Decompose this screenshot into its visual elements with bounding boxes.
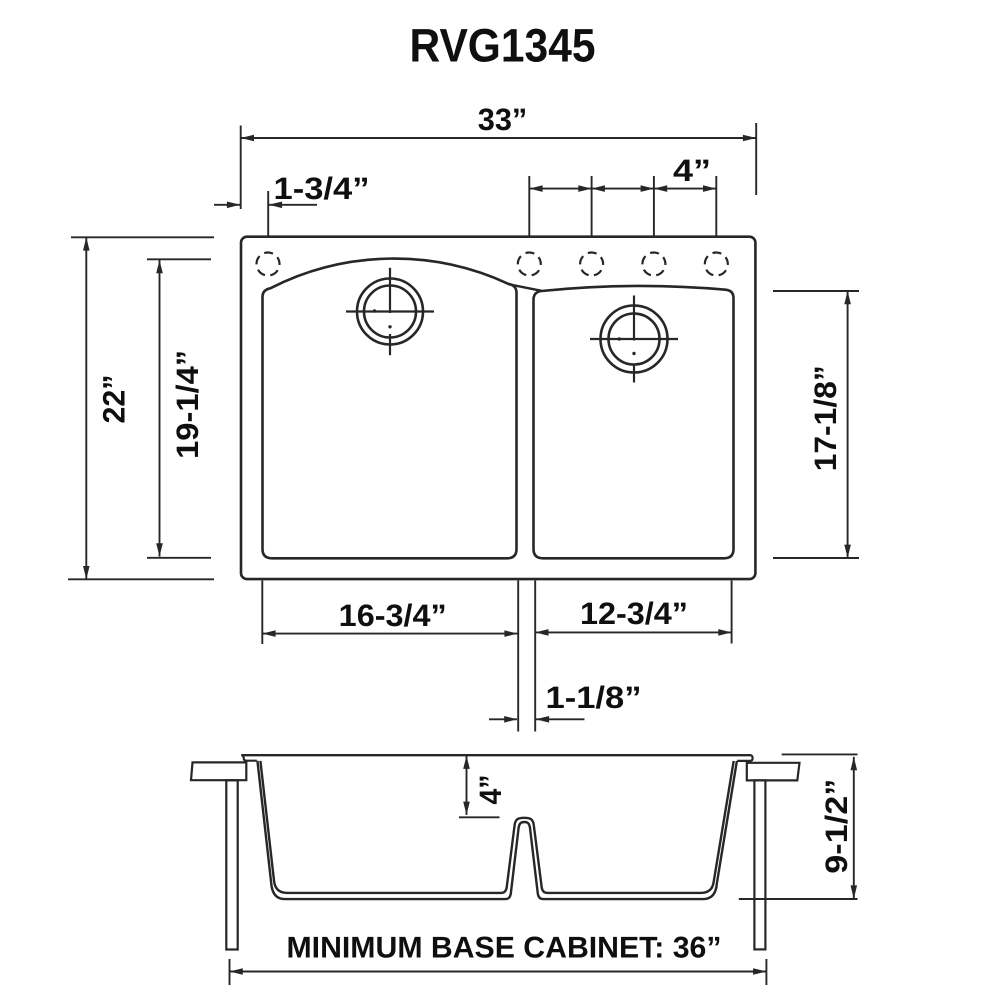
- svg-text:19-1/4”: 19-1/4”: [170, 350, 205, 459]
- svg-text:1-3/4”: 1-3/4”: [274, 171, 370, 206]
- svg-text:12-3/4”: 12-3/4”: [580, 596, 688, 631]
- svg-text:33”: 33”: [478, 102, 528, 137]
- svg-text:22”: 22”: [97, 375, 132, 424]
- svg-text:4”: 4”: [473, 775, 508, 805]
- svg-text:17-1/8”: 17-1/8”: [808, 365, 843, 471]
- svg-text:9-1/2”: 9-1/2”: [819, 779, 854, 874]
- svg-text:4”: 4”: [673, 153, 711, 188]
- svg-text:RVG1345: RVG1345: [410, 19, 596, 72]
- svg-text:1-1/8”: 1-1/8”: [546, 680, 642, 715]
- svg-text:MINIMUM BASE CABINET: 36”: MINIMUM BASE CABINET: 36”: [287, 932, 722, 965]
- svg-text:16-3/4”: 16-3/4”: [339, 598, 447, 633]
